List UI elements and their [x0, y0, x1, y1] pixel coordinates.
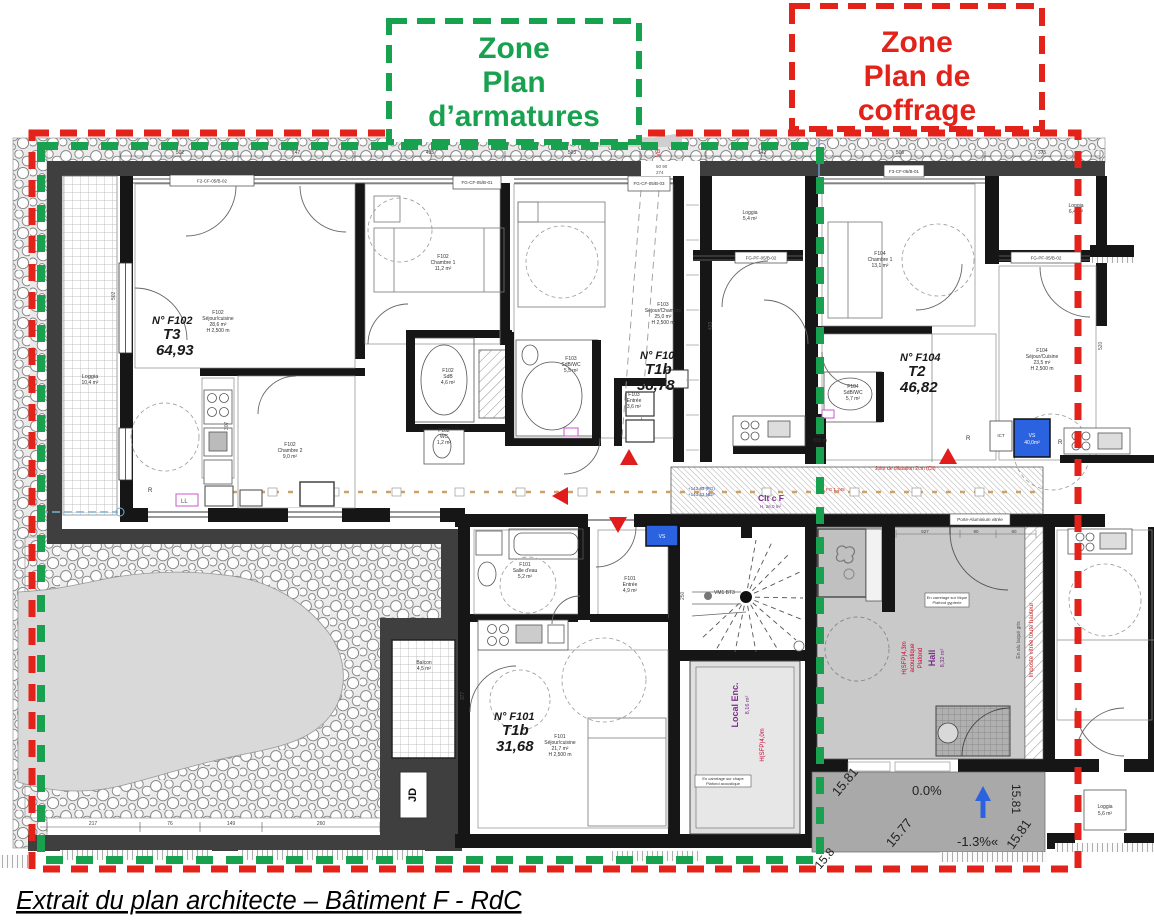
svg-text:8,16 m²: 8,16 m² [745, 696, 751, 715]
svg-text:839 m: 839 m [813, 438, 827, 444]
svg-text:142: 142 [758, 150, 767, 156]
svg-text:217: 217 [89, 821, 98, 827]
svg-text:Porte-Aluminium vitrée: Porte-Aluminium vitrée [957, 517, 1003, 522]
svg-text:10,4 m²: 10,4 m² [82, 380, 99, 386]
svg-text:Plafond: Plafond [918, 648, 924, 668]
svg-text:60: 60 [1011, 529, 1017, 534]
svg-text:H 2,500 m: H 2,500 m [651, 320, 674, 326]
svg-text:Imposte vitrée toute hauteur: Imposte vitrée toute hauteur [1029, 603, 1035, 678]
svg-text:+143.43 NGF: +143.43 NGF [688, 492, 715, 497]
svg-text:506: 506 [896, 150, 905, 156]
svg-text:ICT: ICT [997, 433, 1005, 438]
svg-text:R: R [966, 436, 971, 442]
svg-text:502: 502 [111, 291, 117, 300]
svg-text:VS: VS [659, 534, 666, 540]
svg-text:435: 435 [426, 150, 435, 156]
svg-text:VS: VS [1029, 433, 1036, 439]
svg-text:H 2,500 m: H 2,500 m [1030, 366, 1053, 372]
svg-text:acoustique: acoustique [910, 643, 916, 673]
svg-text:FG-CF-05/B-01: FG-CF-05/B-01 [461, 180, 493, 185]
svg-text:+143.43 (FG): +143.43 (FG) [688, 486, 715, 491]
svg-text:274: 274 [656, 170, 664, 175]
svg-text:5,4 m²: 5,4 m² [743, 216, 758, 222]
svg-text:5,6 m²: 5,6 m² [1098, 811, 1113, 817]
svg-text:H(SFP)4,0m: H(SFP)4,0m [760, 728, 766, 761]
svg-text:VB: VB [656, 149, 662, 157]
svg-text:50 90: 50 90 [656, 164, 668, 169]
svg-text:64,93: 64,93 [156, 342, 194, 359]
svg-text:Loggia: Loggia [1097, 804, 1112, 810]
svg-text:T1b: T1b [502, 722, 529, 739]
svg-text:H 2,500 m: H 2,500 m [548, 752, 571, 758]
svg-text:260: 260 [317, 821, 326, 827]
svg-text:90: 90 [973, 529, 979, 534]
svg-text:149: 149 [227, 821, 236, 827]
svg-text:5,2 m²: 5,2 m² [518, 574, 533, 580]
svg-text:0.0%: 0.0% [912, 783, 942, 798]
svg-text:1,2 m²: 1,2 m² [437, 440, 452, 446]
svg-text:T1b: T1b [645, 361, 672, 378]
svg-text:15.81: 15.81 [1009, 784, 1023, 814]
svg-text:520: 520 [1098, 341, 1104, 350]
svg-text:VM1 BT3: VM1 BT3 [714, 590, 735, 596]
svg-text:T2: T2 [908, 363, 926, 380]
svg-text:FG 1.245: FG 1.245 [826, 487, 845, 492]
svg-text:-1.3%«: -1.3%« [957, 834, 998, 849]
svg-text:307: 307 [224, 421, 230, 430]
svg-text:Clt c F: Clt c F [758, 493, 784, 503]
svg-text:40,0m²: 40,0m² [1024, 440, 1040, 446]
svg-text:527: 527 [921, 529, 929, 534]
svg-text:76: 76 [167, 821, 173, 827]
svg-text:8,32 m²: 8,32 m² [940, 649, 946, 668]
svg-text:d’armatures: d’armatures [428, 100, 600, 133]
svg-text:coffrage: coffrage [858, 94, 976, 127]
svg-text:Plan: Plan [482, 66, 545, 99]
svg-text:5,7 m²: 5,7 m² [846, 396, 861, 402]
svg-text:13,1 m²: 13,1 m² [872, 263, 889, 269]
svg-text:3,6 m²: 3,6 m² [627, 404, 642, 410]
svg-text:433: 433 [708, 321, 714, 330]
svg-text:Joint de dilatation 2cm (Clt): Joint de dilatation 2cm (Clt) [875, 466, 936, 472]
svg-text:Zone: Zone [478, 32, 550, 65]
svg-text:R: R [1058, 440, 1063, 446]
svg-text:5,5 m²: 5,5 m² [564, 368, 579, 374]
svg-text:FG-PF-05/B-02: FG-PF-05/B-02 [746, 256, 777, 261]
svg-text:En alu laqué gris: En alu laqué gris [1016, 621, 1022, 659]
svg-text:46,82: 46,82 [899, 379, 938, 396]
svg-text:H 2,500 m: H 2,500 m [206, 328, 229, 334]
svg-text:38,78: 38,78 [637, 377, 675, 394]
svg-text:375: 375 [1038, 150, 1047, 156]
svg-text:502: 502 [176, 150, 185, 156]
svg-text:11,2 m²: 11,2 m² [435, 266, 452, 272]
svg-text:747: 747 [292, 150, 301, 156]
svg-text:F3-CF-05/B-01: F3-CF-05/B-01 [889, 169, 920, 174]
svg-text:503: 503 [568, 150, 577, 156]
svg-text:250: 250 [680, 591, 686, 600]
svg-text:FG-CF-05/B-03: FG-CF-05/B-03 [633, 181, 665, 186]
svg-text:H(SFP)4,3m: H(SFP)4,3m [902, 641, 908, 674]
svg-text:LL: LL [181, 499, 188, 505]
svg-text:H. 26,0 m²: H. 26,0 m² [760, 504, 782, 509]
svg-text:F2-CF-05/B-02: F2-CF-05/B-02 [197, 179, 228, 184]
svg-text:R: R [148, 488, 153, 494]
svg-text:JD: JD [407, 788, 419, 802]
svg-text:4,9 m²: 4,9 m² [623, 588, 638, 594]
svg-text:9,0 m²: 9,0 m² [283, 454, 298, 460]
svg-text:Zone: Zone [881, 26, 953, 59]
svg-text:T3: T3 [163, 326, 181, 343]
svg-text:Hall: Hall [927, 650, 937, 667]
svg-text:Local Enc.: Local Enc. [730, 682, 740, 727]
svg-text:Extrait du plan architecte – B: Extrait du plan architecte – Bâtiment F … [16, 887, 522, 915]
svg-text:Plafond acoustique: Plafond acoustique [706, 781, 741, 786]
svg-text:31,68: 31,68 [496, 738, 534, 755]
svg-text:Plan de: Plan de [864, 60, 971, 93]
svg-text:Plafond gypterie: Plafond gypterie [933, 600, 963, 605]
svg-text:FG-PF-05/B-02: FG-PF-05/B-02 [1031, 256, 1062, 261]
svg-text:4,5 m²: 4,5 m² [417, 666, 432, 672]
svg-text:377: 377 [460, 691, 466, 700]
svg-text:4,6 m²: 4,6 m² [441, 380, 456, 386]
